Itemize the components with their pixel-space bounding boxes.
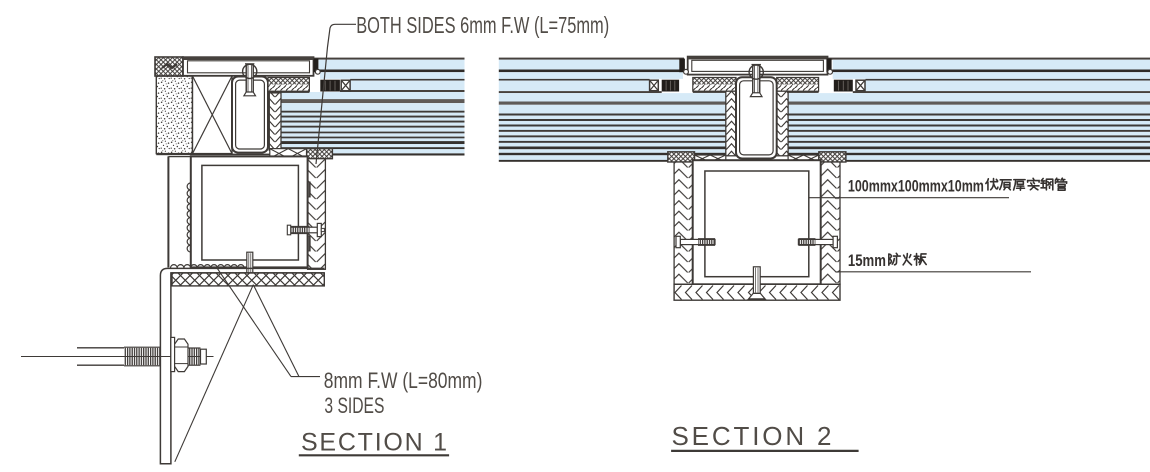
svg-text:3 SIDES: 3 SIDES	[324, 393, 384, 418]
svg-text:SECTION 1: SECTION 1	[301, 429, 447, 457]
svg-text:8mm F.W (L=80mm): 8mm F.W (L=80mm)	[324, 368, 483, 393]
svg-text:SECTION 2: SECTION 2	[672, 421, 832, 451]
svg-text:BOTH SIDES 6mm F.W (L=75mm): BOTH SIDES 6mm F.W (L=75mm)	[356, 12, 609, 38]
svg-text:100mmx100mmx10mm: 100mmx100mmx10mm	[848, 176, 984, 195]
svg-text:15mm: 15mm	[848, 251, 886, 270]
